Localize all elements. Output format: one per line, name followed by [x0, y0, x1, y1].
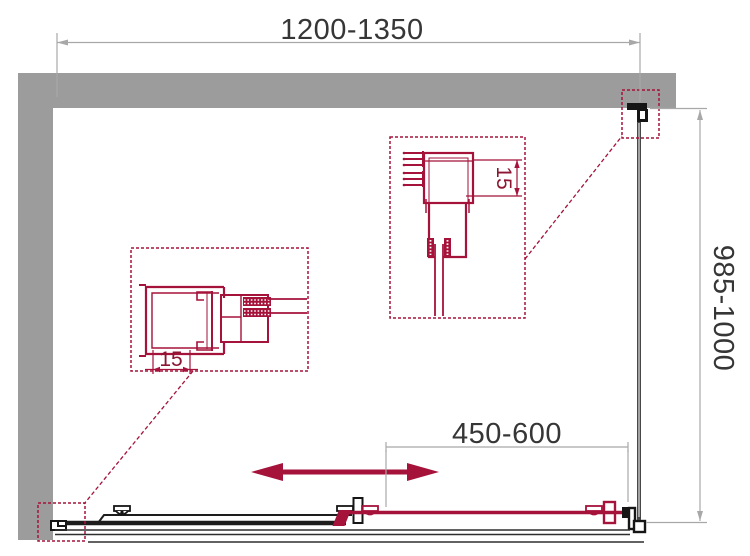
- slide-direction-arrow-icon: [251, 463, 439, 481]
- detail-a-dimension: 15: [145, 348, 198, 374]
- roller-bracket-dark-1: [114, 506, 130, 515]
- top-wall: [18, 73, 676, 108]
- dimension-label-profile-b: 15: [492, 166, 515, 189]
- wall-anchor-combs: [403, 151, 423, 187]
- left-wall: [18, 73, 53, 540]
- glass-section-line: [435, 244, 443, 316]
- detail-b-dimension: 15: [466, 160, 522, 196]
- sliding-door: [333, 502, 629, 526]
- callout-box-a: [131, 248, 308, 371]
- dimension-label-depth: 985-1000: [707, 245, 739, 372]
- dimension-door-opening: 450-600: [386, 418, 628, 507]
- dimension-depth: 985-1000: [646, 109, 739, 523]
- dimension-label-profile-a: 15: [159, 348, 182, 371]
- callout-leader-b: [525, 136, 622, 259]
- wall-profile-bottom-left: [51, 521, 66, 530]
- gasket-strip: [243, 297, 271, 306]
- plan-drawing-svg: 15 15 1200-1350: [0, 0, 750, 556]
- callout-leader-a: [84, 371, 193, 504]
- bottom-track-assembly: [51, 498, 645, 542]
- track-rails: [55, 530, 644, 542]
- detail-a-profile-section: 15: [139, 285, 307, 374]
- detail-b-profile-section: 15: [403, 151, 522, 316]
- door-end-cap: [622, 507, 628, 518]
- fixed-panel: [67, 498, 363, 523]
- shower-enclosure-plan-drawing: 15 15 1200-1350: [0, 0, 750, 556]
- gasket-strip: [243, 308, 271, 317]
- dimension-label-door-opening: 450-600: [452, 418, 562, 450]
- dimension-label-width: 1200-1350: [280, 14, 423, 46]
- glass-section-line: [268, 299, 307, 313]
- wall-profile-top-right: [627, 103, 648, 122]
